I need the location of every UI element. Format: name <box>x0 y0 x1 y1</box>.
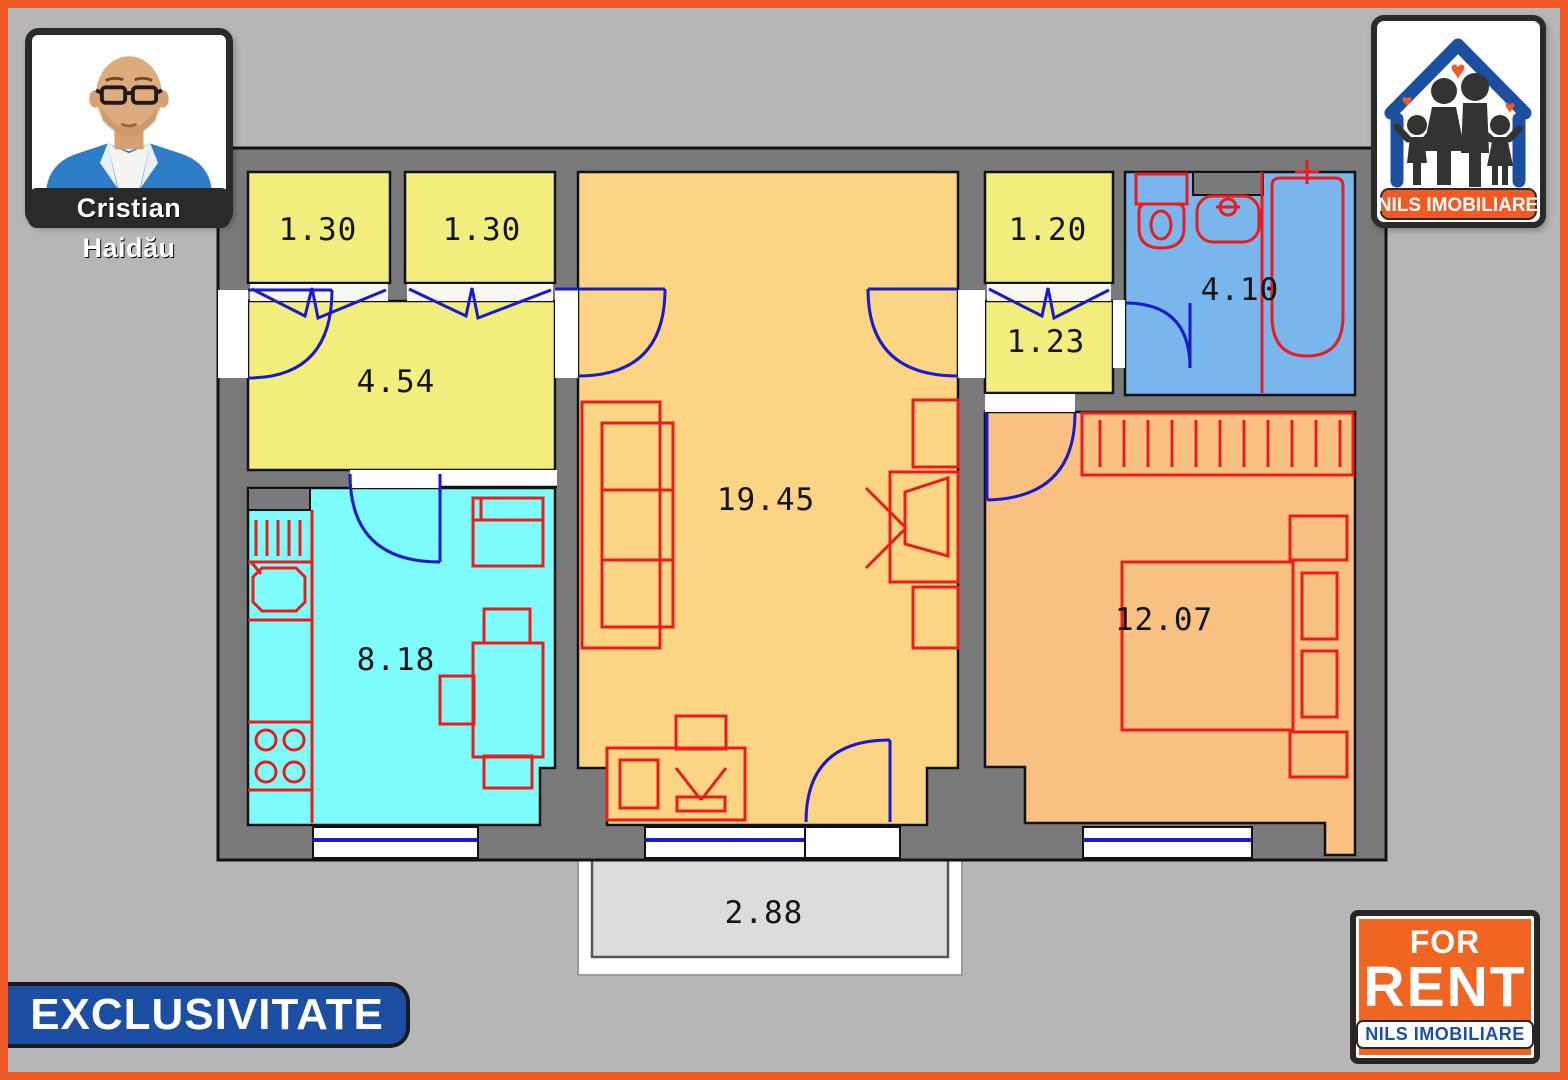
label-kitchen: 8.18 <box>357 642 436 678</box>
for-rent-badge: FOR RENT NILS IMOBILIARE <box>1350 910 1540 1064</box>
label-bedroom: 12.07 <box>1115 602 1213 638</box>
exclusivity-label: EXCLUSIVITATE <box>30 990 384 1040</box>
label-closet-left-b: 1.30 <box>443 212 522 248</box>
windows <box>313 827 1252 858</box>
label-living: 19.45 <box>717 482 815 518</box>
label-bathroom: 4.10 <box>1201 272 1280 308</box>
agent-name: Cristian Haidău <box>28 188 230 228</box>
exclusivity-banner: EXCLUSIVITATE <box>8 982 410 1048</box>
label-balcony: 2.88 <box>725 895 804 931</box>
kitchen-window <box>313 827 478 858</box>
floor-plan: 1.30 1.30 4.54 8.18 19.45 1.20 1.23 4.10… <box>0 0 1568 1080</box>
label-closet-right: 1.20 <box>1009 212 1088 248</box>
for-rent-line2: RENT <box>1363 959 1526 1015</box>
svg-text:♥: ♥ <box>1402 91 1413 111</box>
label-hallway: 4.54 <box>357 364 436 400</box>
agent-card: Cristian Haidău <box>25 28 233 226</box>
balcony-door-opening <box>805 827 900 858</box>
bedroom-window <box>1083 827 1252 858</box>
kitchen-shaft <box>248 488 310 510</box>
svg-text:♥: ♥ <box>1450 55 1465 85</box>
brand-logo: ♥ ♥ ♥ NILS IMOBILIARE <box>1371 15 1546 228</box>
label-hall-right: 1.23 <box>1007 324 1086 360</box>
for-rent-line1: FOR <box>1410 925 1481 959</box>
for-rent-brand: NILS IMOBILIARE <box>1356 1020 1534 1049</box>
label-closet-left-a: 1.30 <box>279 212 358 248</box>
svg-text:♥: ♥ <box>1505 97 1516 117</box>
living-window <box>645 827 805 858</box>
logo-brand-text: NILS IMOBILIARE <box>1378 195 1538 216</box>
bathroom-shaft <box>1193 172 1263 195</box>
